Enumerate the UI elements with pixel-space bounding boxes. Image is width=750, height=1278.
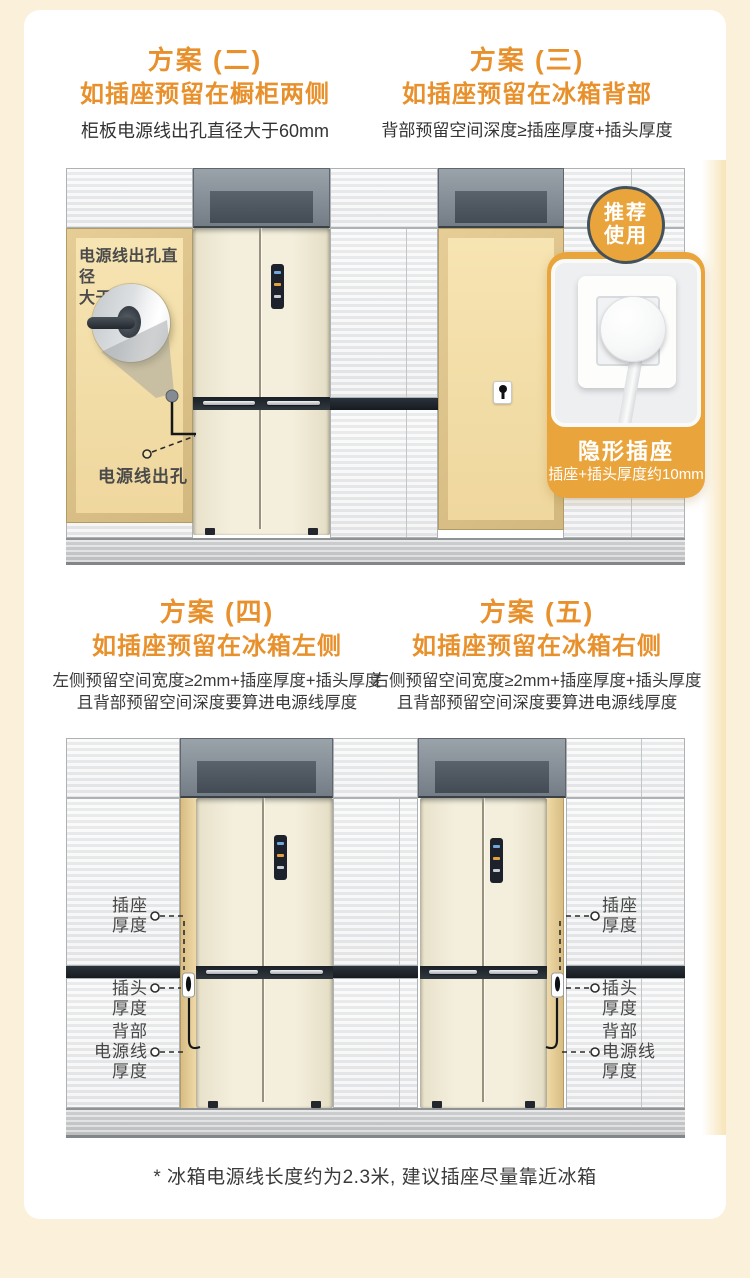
leader-marker (151, 1048, 159, 1056)
footnote: * 冰箱电源线长度约为2.3米, 建议插座尽量靠近冰箱 (62, 1162, 688, 1189)
magnifier-beam (101, 320, 174, 398)
power-cord-line (172, 402, 196, 434)
plug-pin-icon (555, 977, 560, 992)
leader-marker (151, 984, 159, 992)
badge-line2: 使用 (590, 225, 662, 248)
callout-title: 隐形插座 (547, 434, 705, 466)
leader-marker (143, 450, 151, 458)
leader-marker (591, 1048, 599, 1056)
recommended-callout: 隐形插座 插座+插头厚度约10mm (547, 252, 705, 498)
plug-pin-icon (186, 977, 191, 992)
flat-plug-head (600, 296, 666, 362)
leader-line (152, 436, 195, 452)
hidden-socket-photo (551, 259, 701, 427)
callout-subtitle: 插座+插头厚度约10mm (547, 463, 705, 484)
leader-marker (151, 912, 159, 920)
badge-line1: 推荐 (590, 202, 662, 225)
cable-end-icon (166, 390, 178, 402)
power-cord-line (546, 998, 557, 1048)
leader-marker (591, 984, 599, 992)
leader-marker (591, 912, 599, 920)
recommended-badge: 推荐 使用 (587, 186, 665, 264)
page: { "page": { "background": "#FBF0D9", "ca… (0, 0, 750, 1278)
power-cord-line (189, 998, 200, 1048)
